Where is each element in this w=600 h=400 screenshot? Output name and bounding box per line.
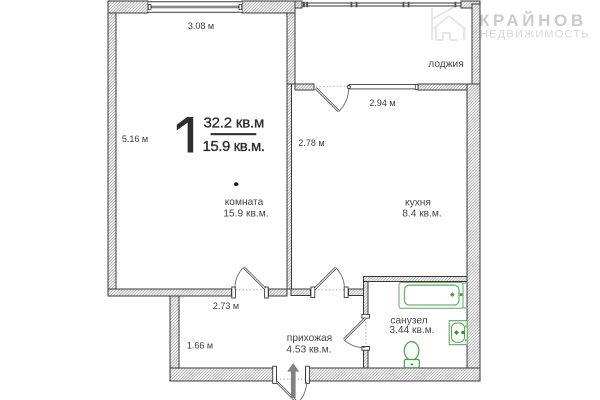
svg-text:2.94 м: 2.94 м [369, 98, 395, 108]
svg-text:НЕДВИЖИМОСТЬ: НЕДВИЖИМОСТЬ [480, 29, 590, 41]
svg-text:15.9 кв.м.: 15.9 кв.м. [223, 209, 268, 220]
svg-text:КРАЙНОВ: КРАЙНОВ [479, 11, 587, 30]
svg-text:4.53 кв.м.: 4.53 кв.м. [286, 345, 331, 356]
svg-text:32.2 кв.м: 32.2 кв.м [204, 115, 265, 132]
svg-text:8.4 кв.м.: 8.4 кв.м. [402, 209, 442, 220]
svg-text:кухня: кухня [405, 197, 431, 208]
svg-text:3.44 кв.м.: 3.44 кв.м. [389, 325, 434, 336]
svg-text:1.66 м: 1.66 м [187, 341, 213, 351]
svg-text:15.9 кв.м.: 15.9 кв.м. [203, 138, 265, 155]
svg-text:комната: комната [225, 197, 264, 208]
svg-text:лоджия: лоджия [428, 59, 463, 70]
svg-text:прихожая: прихожая [287, 333, 332, 344]
svg-text:5.16 м: 5.16 м [122, 134, 148, 144]
svg-text:3.08 м: 3.08 м [188, 21, 214, 31]
svg-text:2.78 м: 2.78 м [298, 138, 324, 148]
svg-text:2.73 м: 2.73 м [213, 301, 239, 311]
